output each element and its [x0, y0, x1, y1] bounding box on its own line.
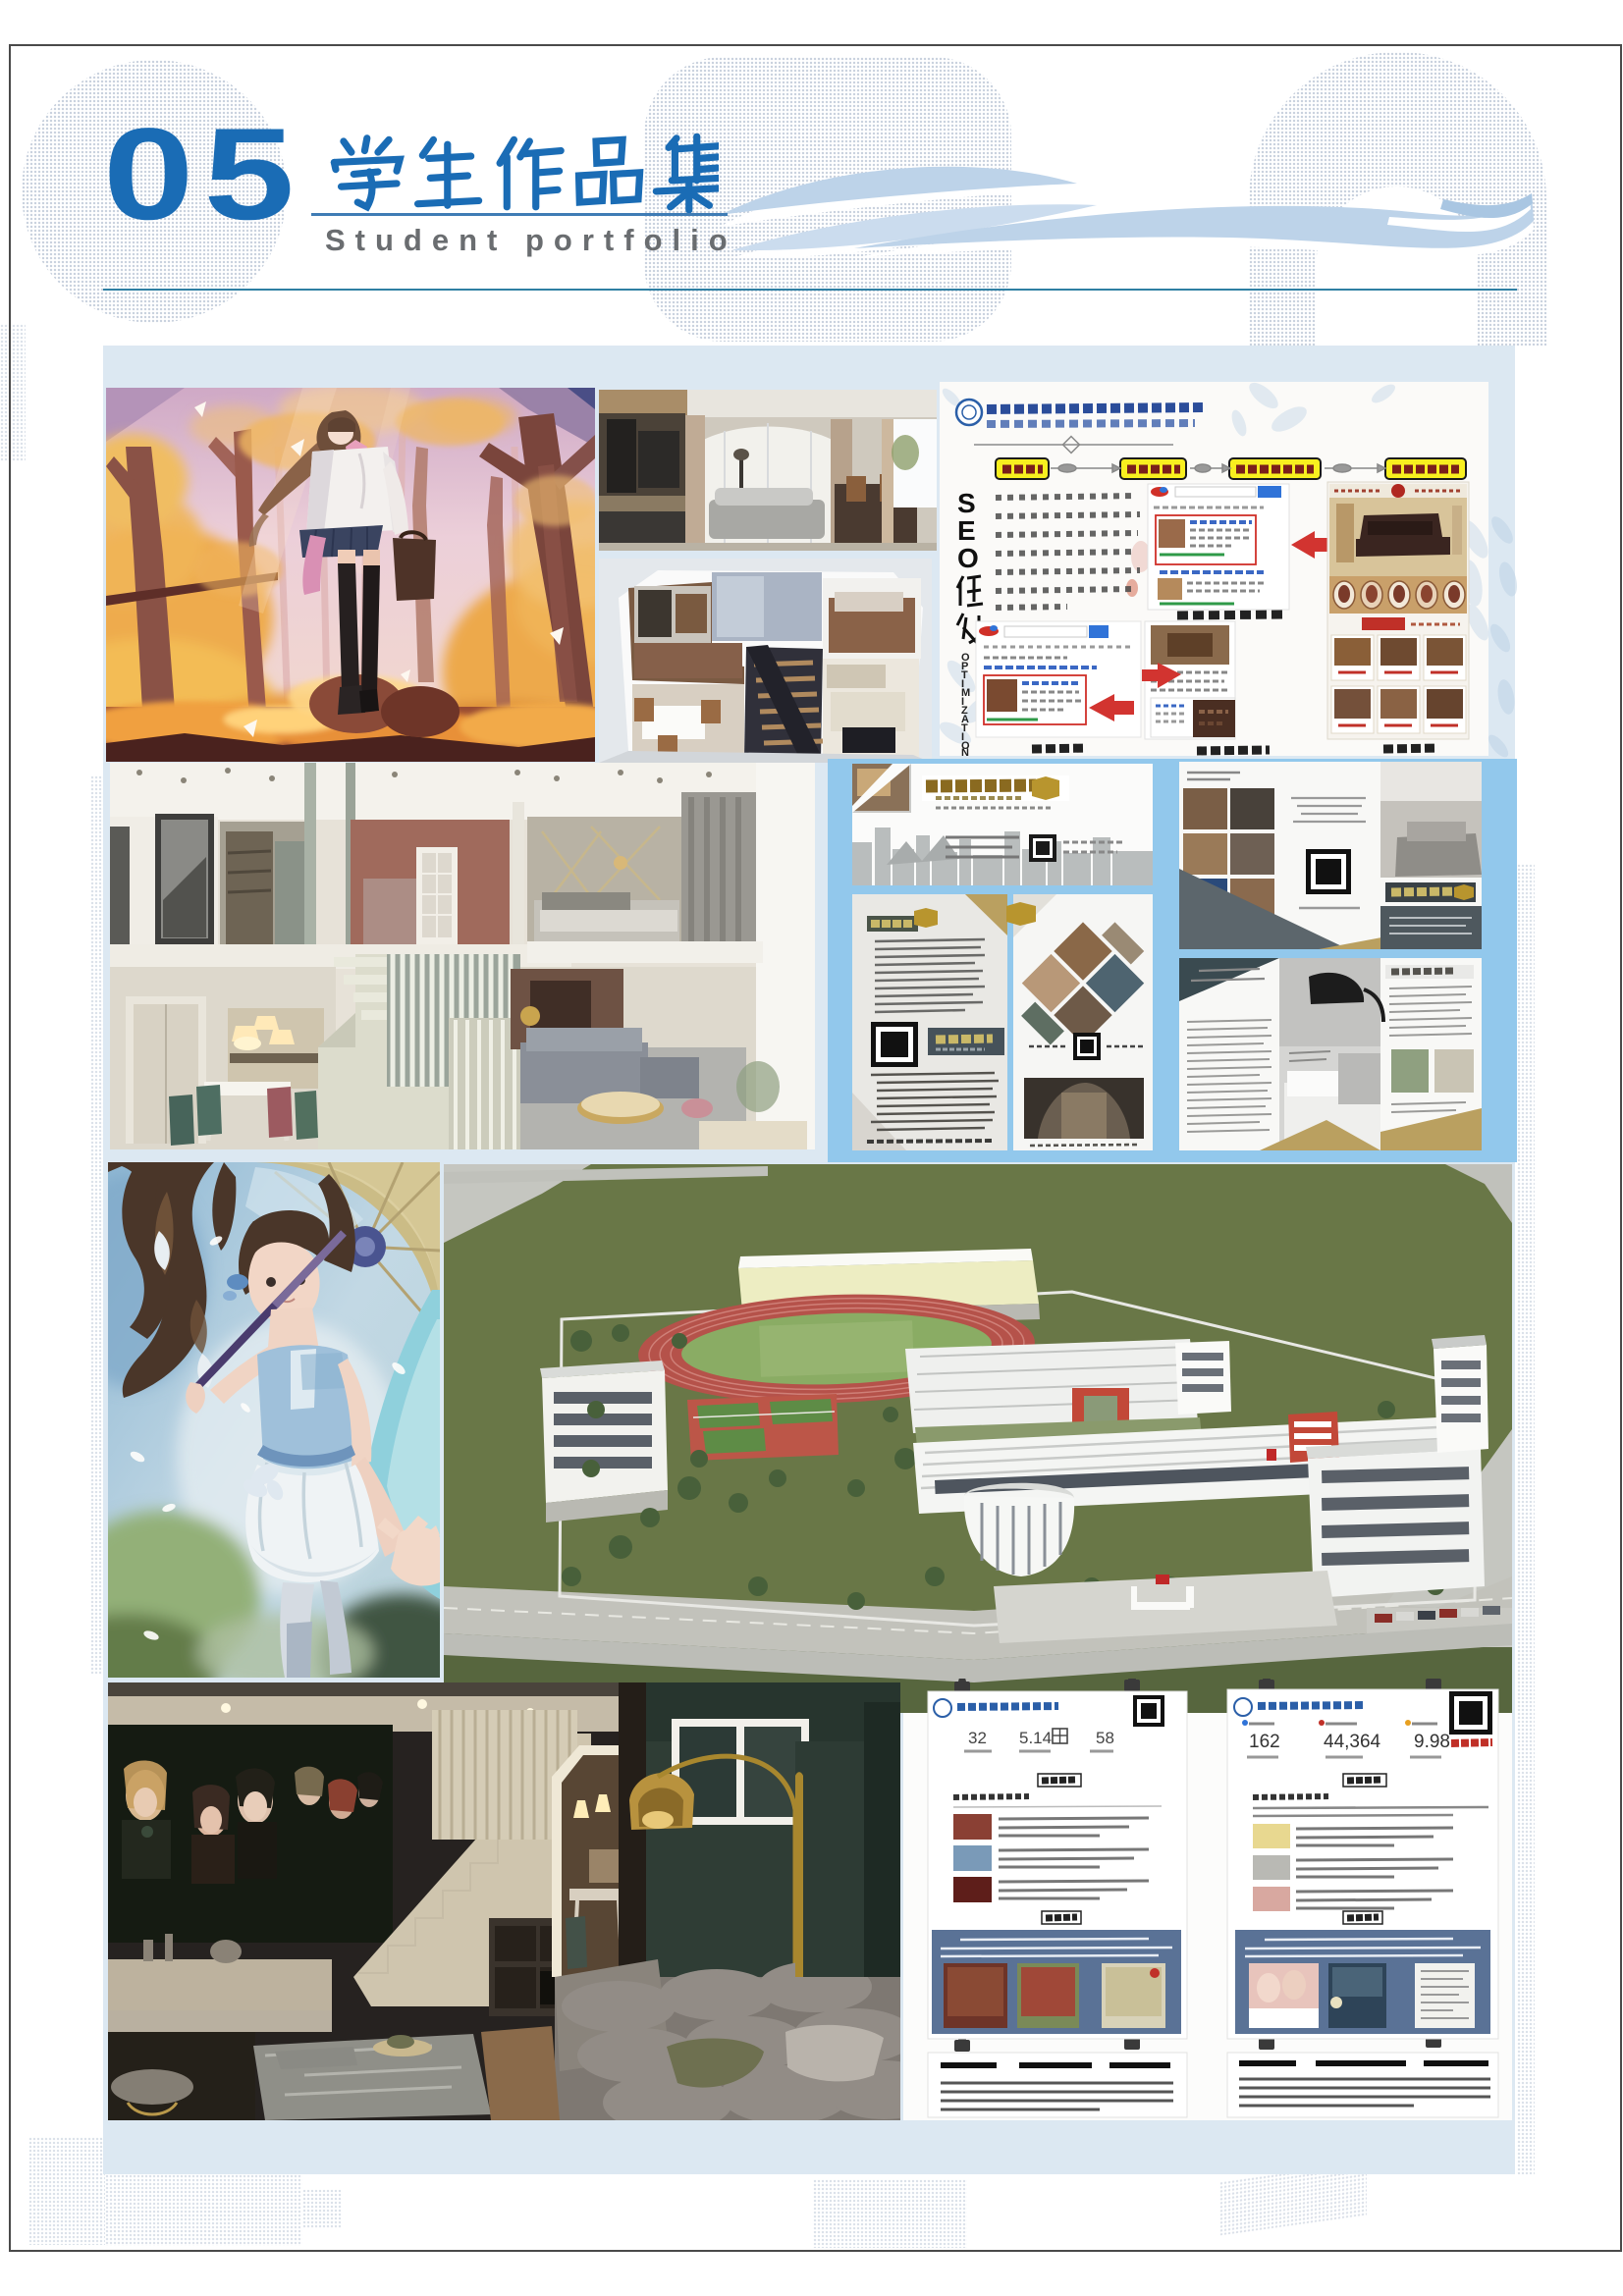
svg-text:5.14: 5.14 — [1019, 1729, 1052, 1747]
svg-text:N: N — [961, 747, 969, 756]
svg-text:9.98: 9.98 — [1414, 1732, 1450, 1752]
svg-text:E: E — [957, 515, 976, 546]
svg-text:162: 162 — [1249, 1732, 1280, 1752]
svg-text:S: S — [957, 488, 976, 518]
svg-text:O: O — [957, 543, 979, 573]
svg-text:44,364: 44,364 — [1324, 1732, 1381, 1752]
svg-text:32: 32 — [968, 1729, 987, 1747]
svg-text:58: 58 — [1096, 1729, 1114, 1747]
